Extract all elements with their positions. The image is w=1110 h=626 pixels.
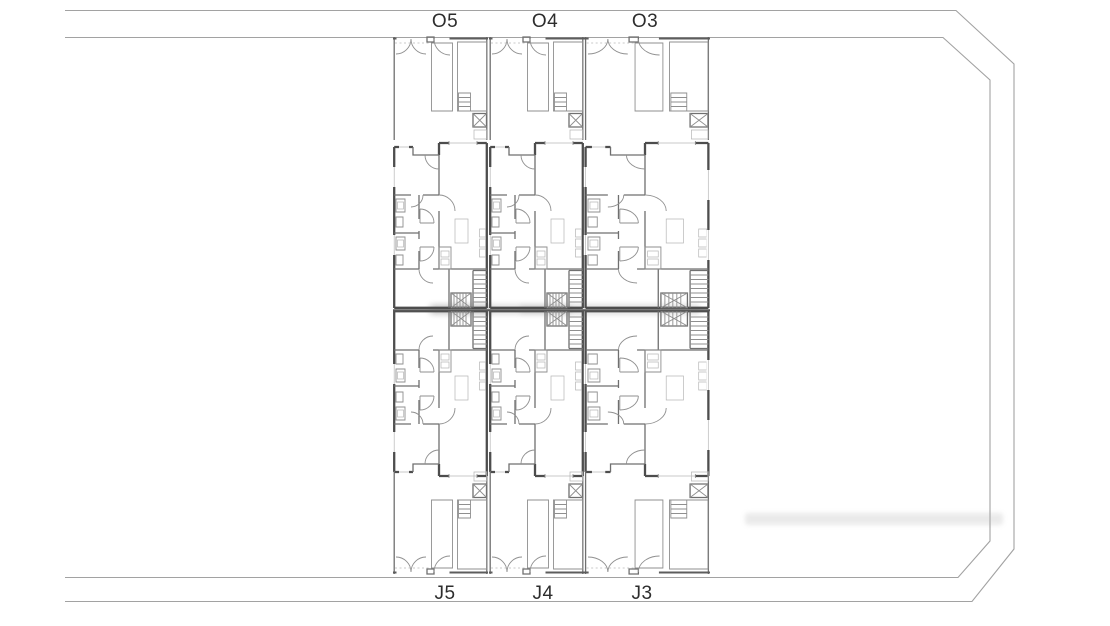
unit-O5-ground-plan [394, 141, 487, 308]
unit-J4-ground-plan [490, 311, 583, 478]
unit-J3-ground-plan [586, 311, 709, 478]
unit-O4-ground-plan [490, 141, 583, 308]
unit-J5-ground-plan [394, 311, 487, 478]
unit-O5-front-yard [393, 37, 488, 140]
unit-label-J5: J5 [434, 583, 455, 604]
unit-J4-front-yard [489, 471, 584, 574]
floorplan-page: O5 O4 O3 J5 J4 J3 [0, 0, 1110, 626]
unit-O3-front-yard [584, 37, 710, 140]
watermark-streak-right [745, 513, 1003, 525]
unit-J5-front-yard [393, 471, 488, 574]
floorplan-canvas: O5 O4 O3 J5 J4 J3 [0, 0, 1110, 626]
unit-label-O4: O4 [532, 11, 558, 32]
unit-label-J3: J3 [631, 583, 652, 604]
unit-J3-front-yard [584, 471, 710, 574]
unit-O4-front-yard [489, 37, 584, 140]
unit-label-O5: O5 [432, 11, 458, 32]
unit-label-O3: O3 [632, 11, 658, 32]
unit-O3-ground-plan [586, 141, 709, 308]
unit-label-J4: J4 [532, 583, 553, 604]
